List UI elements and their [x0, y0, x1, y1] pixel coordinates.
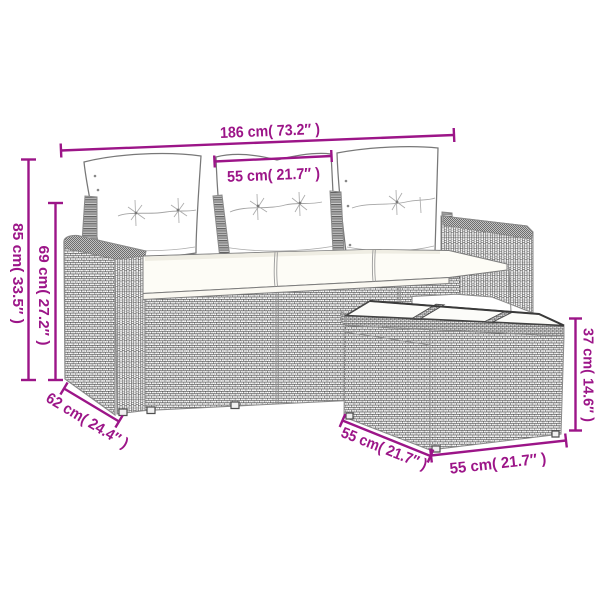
svg-text:37 cm( 14.6″ ): 37 cm( 14.6″ ) [580, 328, 597, 422]
svg-text:85 cm( 33.5″ ): 85 cm( 33.5″ ) [9, 223, 26, 324]
svg-text:69 cm( 27.2″ ): 69 cm( 27.2″ ) [35, 246, 52, 346]
